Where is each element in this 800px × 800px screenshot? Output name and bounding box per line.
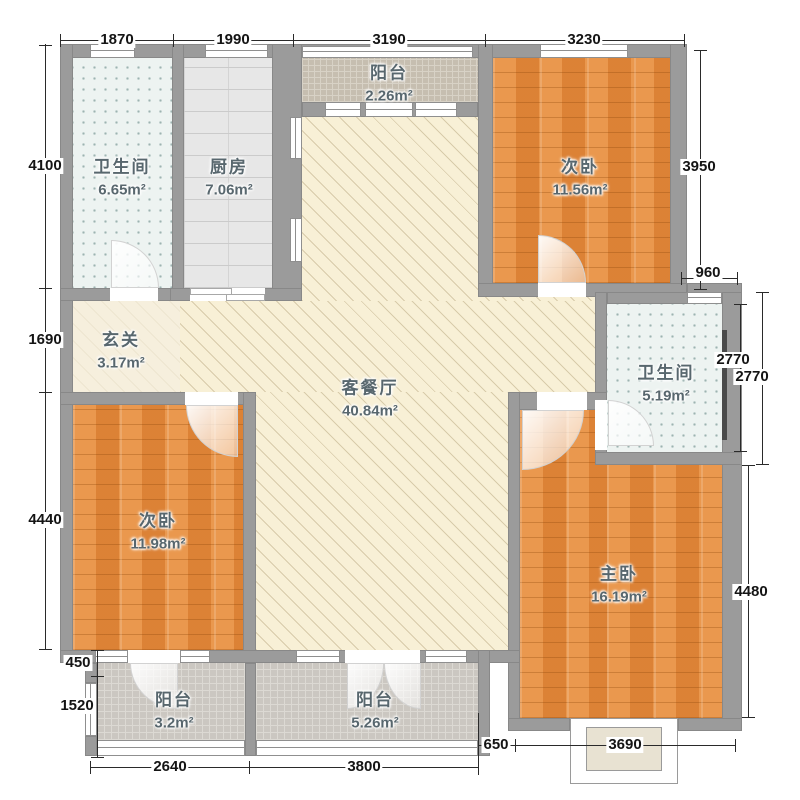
dim-tick [735, 739, 736, 752]
room-living-floor [302, 117, 478, 301]
dim-tick [249, 761, 250, 774]
dim-label: 2770 [733, 369, 770, 385]
room-name: 客餐厅 [342, 377, 399, 401]
window [180, 650, 210, 663]
wall [595, 452, 742, 465]
room-name: 主卧 [591, 563, 647, 587]
dim-label: 1690 [26, 332, 63, 348]
dim-label: 3230 [565, 32, 602, 48]
room-area: 3.17m² [97, 353, 145, 374]
dim-tick [485, 34, 486, 47]
dim-label: 4440 [26, 512, 63, 528]
wall [85, 736, 97, 756]
dim-tick [681, 272, 682, 285]
room-living-floor [256, 392, 508, 650]
dim-label: 650 [481, 737, 510, 753]
dim-tick [293, 34, 294, 47]
dim-tick [478, 761, 479, 774]
room-name: 阳台 [154, 689, 193, 713]
room-area: 11.98m² [130, 534, 185, 555]
room-name: 阳台 [351, 689, 399, 713]
dim-tick [734, 304, 747, 305]
window [415, 102, 457, 117]
room-label-bathroom-right: 卫生间 5.19m² [638, 362, 695, 407]
room-label-bathroom-top: 卫生间 6.65m² [94, 156, 151, 201]
room-label-foyer: 玄关 3.17m² [97, 329, 145, 374]
bathroom-window-glass [722, 330, 727, 440]
dim-tick [694, 289, 707, 290]
room-area: 16.19m² [591, 587, 647, 608]
window [256, 740, 478, 756]
window [97, 740, 245, 756]
dim-tick [39, 392, 52, 393]
dim-label: 3690 [606, 737, 643, 753]
dim-tick [91, 676, 104, 677]
room-label-kitchen: 厨房 7.06m² [205, 156, 253, 201]
dim-label: 450 [63, 655, 92, 671]
wall [245, 663, 256, 756]
dim-tick [742, 717, 755, 718]
dim-label: 1520 [58, 698, 95, 714]
room-area: 5.19m² [638, 386, 695, 407]
room-name: 厨房 [205, 156, 253, 180]
window [425, 650, 467, 663]
room-name: 玄关 [97, 329, 145, 353]
wall [60, 44, 73, 663]
dim-line-bottom-outer [90, 767, 479, 768]
room-name: 次卧 [552, 156, 607, 180]
room-name: 阳台 [365, 62, 413, 86]
door-opening [345, 650, 420, 663]
dim-tick [737, 272, 738, 285]
wall [508, 718, 570, 731]
dim-tick [39, 649, 52, 650]
dim-label: 4480 [732, 584, 769, 600]
room-area: 5.26m² [351, 713, 399, 734]
room-label-bedroom-top-right: 次卧 11.56m² [552, 156, 607, 201]
wall [508, 392, 520, 731]
wall [172, 44, 184, 301]
dim-label: 2770 [714, 352, 751, 368]
dim-tick [742, 465, 755, 466]
dim-tick [684, 34, 685, 47]
room-area: 2.26m² [365, 86, 413, 107]
window [95, 650, 128, 663]
room-label-master-bedroom: 主卧 16.19m² [591, 563, 647, 608]
dim-tick [734, 451, 747, 452]
dim-label: 1870 [98, 32, 135, 48]
dim-tick [756, 464, 769, 465]
room-area: 11.56m² [552, 180, 607, 201]
dim-tick [39, 288, 52, 289]
door-opening [537, 392, 587, 410]
room-label-bedroom-bottom-left: 次卧 11.98m² [130, 510, 185, 555]
room-label-balcony-bottom-center: 阳台 5.26m² [351, 689, 399, 734]
door-opening [185, 392, 238, 405]
door-opening [110, 288, 158, 301]
dim-label: 3800 [345, 759, 382, 775]
room-area: 6.65m² [94, 180, 151, 201]
room-label-living-dining: 客餐厅 40.84m² [342, 377, 399, 422]
dim-tick [39, 45, 52, 46]
door-opening [538, 283, 586, 297]
dim-line-left-inner [97, 650, 98, 758]
wall [272, 44, 302, 301]
door-opening [128, 650, 180, 663]
room-label-balcony-top: 阳台 2.26m² [365, 62, 413, 107]
dim-tick [60, 34, 61, 47]
dim-tick [90, 761, 91, 774]
window [290, 117, 302, 159]
dim-label: 2640 [151, 759, 188, 775]
window [687, 292, 722, 304]
room-area: 40.84m² [342, 401, 399, 422]
door-opening [595, 400, 607, 450]
wall [478, 44, 493, 292]
dim-label: 3190 [370, 32, 407, 48]
dim-label: 4100 [26, 158, 63, 174]
dim-label: 960 [693, 265, 722, 281]
room-name: 卫生间 [94, 156, 151, 180]
wall [678, 718, 742, 731]
dim-tick [91, 650, 104, 651]
dim-tick [694, 50, 707, 51]
dim-tick [515, 739, 516, 752]
window [325, 102, 361, 117]
room-name: 卫生间 [638, 362, 695, 386]
wall [243, 392, 256, 663]
window [296, 650, 340, 663]
dim-tick [91, 757, 104, 758]
floor-plan: 1870 1990 3190 3230 4100 1690 4440 450 1… [0, 0, 800, 800]
room-area: 7.06m² [205, 180, 253, 201]
dim-tick [173, 34, 174, 47]
room-label-balcony-bottom-left: 阳台 3.2m² [154, 689, 193, 734]
dim-label: 1990 [214, 32, 251, 48]
sliding-door [226, 294, 265, 301]
dim-label: 3950 [680, 159, 717, 175]
dim-tick [756, 292, 769, 293]
room-area: 3.2m² [154, 713, 193, 734]
room-name: 次卧 [130, 510, 185, 534]
window [290, 218, 302, 262]
